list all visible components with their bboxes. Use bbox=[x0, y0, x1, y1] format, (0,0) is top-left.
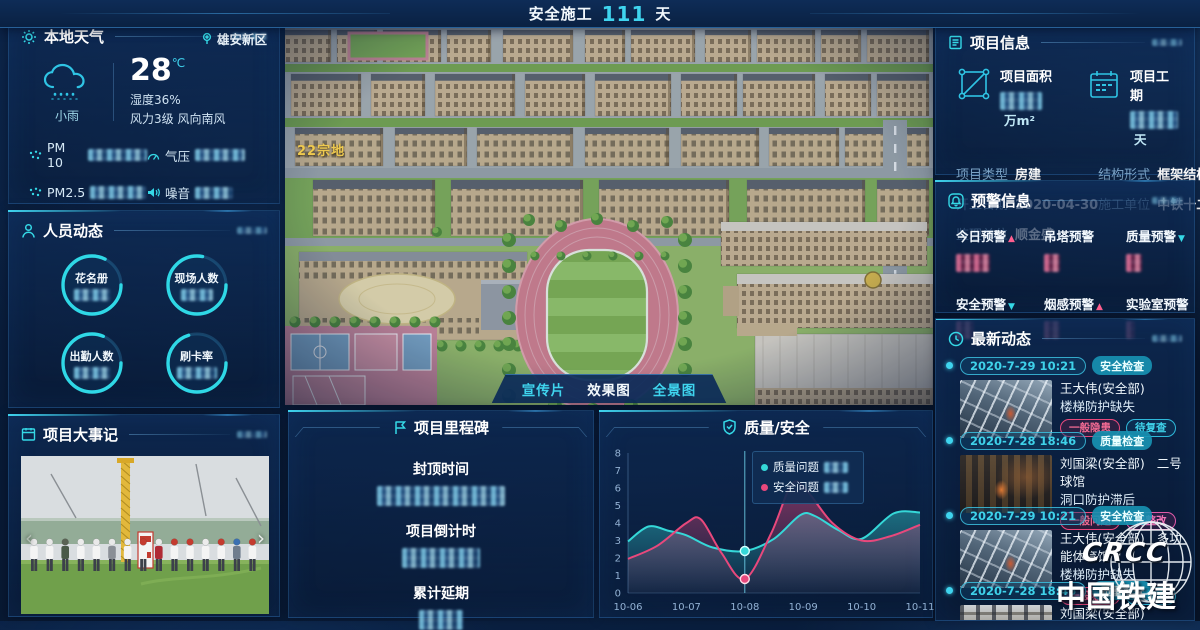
topping-time-value-redacted bbox=[377, 486, 505, 506]
svg-text:1: 1 bbox=[615, 571, 621, 582]
header-deco-line-left bbox=[60, 13, 390, 14]
news-person: 刘国梁(安全部) bbox=[1060, 456, 1145, 471]
project-duration-stat: 项目工期 天 bbox=[1086, 66, 1178, 148]
land-parcel-label: 22宗地 bbox=[297, 140, 345, 159]
milestone-photo: ‹ › bbox=[21, 456, 269, 614]
news-panel-header: 最新动态 bbox=[936, 319, 1194, 352]
view-mode-tabs: 宣传片 效果图 全景图 bbox=[492, 374, 727, 403]
stat-attendance: 出勤人数 bbox=[59, 330, 125, 396]
news-issue: 楼梯防护缺失 bbox=[1060, 398, 1176, 416]
chart-tooltip: 质量问题 安全问题 bbox=[752, 451, 864, 504]
news-photo-thumbnail bbox=[960, 455, 1052, 513]
shield-check-icon bbox=[722, 419, 737, 435]
location-pin-icon bbox=[201, 32, 213, 45]
milestone-events-panel: 项目大事记 bbox=[8, 414, 280, 617]
wind-text: 风力3级 风向南风 bbox=[130, 110, 225, 129]
info-panel-title: 项目信息 bbox=[970, 32, 1030, 53]
svg-text:10-10: 10-10 bbox=[847, 602, 876, 613]
quality-legend-label: 质量问题 bbox=[773, 458, 819, 478]
dust-icon bbox=[29, 187, 42, 198]
topping-time-label: 封顶时间 bbox=[413, 459, 469, 479]
tab-promo-video[interactable]: 宣传片 bbox=[522, 379, 566, 399]
alert-today: 今日预警▲ bbox=[956, 226, 1044, 272]
crcc-acronym: CRCC bbox=[1080, 538, 1169, 568]
alert-quality: 质量预警▼ bbox=[1126, 226, 1194, 272]
alerts-panel-header: 预警信息 bbox=[936, 181, 1194, 214]
svg-text:8: 8 bbox=[615, 449, 621, 460]
header-deco-line-right bbox=[810, 13, 1140, 14]
area-icon bbox=[956, 66, 992, 102]
dust-icon bbox=[29, 150, 42, 161]
trend-up-icon: ▲ bbox=[1008, 234, 1015, 244]
delay-value-redacted bbox=[419, 610, 463, 630]
svg-text:10-07: 10-07 bbox=[672, 602, 701, 613]
news-entry[interactable]: 2020-7-28 18:46 质量检查 刘国梁(安全部)二号球馆 洞口防护滞后… bbox=[946, 431, 1194, 506]
events-panel-title: 项目大事记 bbox=[43, 424, 118, 445]
alarm-bell-icon bbox=[948, 193, 964, 209]
svg-text:3: 3 bbox=[615, 536, 621, 547]
speaker-icon bbox=[147, 187, 160, 198]
weather-panel-title: 本地天气 bbox=[44, 26, 104, 47]
countdown-label: 项目倒计时 bbox=[406, 521, 476, 541]
carousel-prev-button[interactable]: ‹ bbox=[25, 528, 33, 548]
location-badge: 雄安新区 bbox=[201, 29, 267, 48]
news-entry[interactable]: 2020-7-29 10:21 安全检查 王大伟(安全部) 楼梯防护缺失 一般隐… bbox=[946, 356, 1194, 431]
noise-metric: 噪音 bbox=[147, 183, 265, 202]
news-type-badge: 质量检查 bbox=[1092, 431, 1152, 450]
news-type-badge: 安全检查 bbox=[1092, 356, 1152, 375]
project-milestone-panel: 项目里程碑 封顶时间 项目倒计时 累计延期 bbox=[288, 410, 594, 618]
clock-icon bbox=[948, 331, 964, 347]
calendar-icon bbox=[1086, 66, 1122, 102]
pressure-metric: 气压 bbox=[147, 140, 265, 170]
alert-quality-value-redacted bbox=[1126, 254, 1142, 272]
stat-roster: 花名册 bbox=[59, 252, 125, 318]
area-value-redacted bbox=[1000, 92, 1042, 110]
cardrate-value-redacted bbox=[177, 367, 217, 379]
header-title-suffix: 天 bbox=[655, 3, 671, 24]
trend-down-icon: ▼ bbox=[1008, 302, 1015, 312]
attendance-value-redacted bbox=[74, 367, 110, 379]
header-title-prefix: 安全施工 bbox=[529, 3, 593, 24]
svg-text:2: 2 bbox=[615, 554, 621, 565]
news-photo-thumbnail bbox=[960, 605, 1052, 621]
safe-construction-days: 111 bbox=[602, 2, 647, 26]
person-icon bbox=[21, 223, 36, 239]
temperature-value: 28 bbox=[130, 53, 172, 88]
svg-text:10-08: 10-08 bbox=[730, 602, 759, 613]
personnel-panel: 人员动态 花名册 现场人数 出勤人数 刷卡率 bbox=[8, 210, 280, 408]
alert-today-value-redacted bbox=[956, 254, 990, 272]
alert-crane: 吊塔预警 bbox=[1044, 226, 1126, 272]
pm25-value-redacted bbox=[90, 186, 146, 199]
crcc-logo: CRCC 中国铁建 bbox=[1056, 524, 1200, 621]
flag-icon bbox=[393, 420, 407, 435]
timeline-dot bbox=[946, 512, 953, 519]
project-info-panel: 项目信息 项目面积 万m² 项目工期 bbox=[935, 22, 1195, 175]
carousel-next-button[interactable]: › bbox=[257, 528, 265, 548]
crcc-chinese-name: 中国铁建 bbox=[1056, 572, 1176, 616]
personnel-panel-title: 人员动态 bbox=[43, 220, 103, 241]
quality-tip-value-redacted bbox=[824, 462, 848, 473]
quality-safety-panel: 质量/安全 01234567810-0610-0710-0810-0910-10… bbox=[599, 410, 933, 618]
news-person: 王大伟(安全部) bbox=[1060, 381, 1145, 396]
pm10-value-redacted bbox=[88, 149, 147, 161]
weather-panel: 本地天气 雄安新区 小雨 28℃ 湿度36% 风力3级 风向南风 bbox=[8, 16, 280, 204]
svg-text:10-11: 10-11 bbox=[905, 602, 934, 613]
project-area-stat: 项目面积 万m² bbox=[956, 66, 1056, 148]
quality-legend-dot bbox=[761, 464, 768, 471]
svg-text:10-06: 10-06 bbox=[613, 602, 642, 613]
location-name: 雄安新区 bbox=[217, 29, 267, 48]
sun-gear-icon bbox=[21, 29, 37, 45]
milestone-panel-title: 项目里程碑 bbox=[414, 417, 489, 438]
duration-value-redacted bbox=[1130, 111, 1178, 129]
svg-text:6: 6 bbox=[615, 484, 621, 495]
trend-down-icon: ▼ bbox=[1178, 234, 1185, 244]
temperature-unit: ℃ bbox=[172, 56, 185, 70]
weather-condition: 小雨 bbox=[55, 107, 79, 124]
svg-text:10-09: 10-09 bbox=[789, 602, 818, 613]
pm10-metric: PM 10 bbox=[29, 140, 147, 170]
svg-text:7: 7 bbox=[615, 466, 621, 477]
news-photo-thumbnail bbox=[960, 530, 1052, 588]
safety-tip-value-redacted bbox=[824, 482, 848, 493]
air-metrics: PM 10 气压 PM2.5 噪音 bbox=[9, 130, 279, 202]
news-timestamp: 2020-7-29 10:21 bbox=[960, 357, 1086, 375]
timeline-dot bbox=[946, 587, 953, 594]
weather-current: 小雨 28℃ 湿度36% 风力3级 风向南风 bbox=[9, 50, 279, 130]
svg-text:4: 4 bbox=[615, 519, 621, 530]
milestone-panel-header: 项目里程碑 bbox=[289, 411, 593, 443]
timeline-dot bbox=[946, 437, 953, 444]
alerts-panel: 预警信息 今日预警▲ 吊塔预警 质量预警▼ 安全预警▼ 烟感预警▲ 实验室预警 bbox=[935, 180, 1195, 313]
news-photo-thumbnail bbox=[960, 380, 1052, 438]
onsite-value-redacted bbox=[181, 289, 213, 301]
delay-label: 累计延期 bbox=[413, 583, 469, 603]
news-timestamp: 2020-7-28 18:46 bbox=[960, 432, 1086, 450]
noise-value-redacted bbox=[195, 187, 233, 199]
document-icon bbox=[948, 35, 963, 50]
rain-cloud-icon bbox=[41, 61, 93, 105]
pressure-value-redacted bbox=[195, 149, 245, 161]
countdown-value-redacted bbox=[402, 548, 480, 568]
chart-panel-header: 质量/安全 bbox=[600, 411, 932, 443]
safety-legend-label: 安全问题 bbox=[773, 478, 819, 498]
personnel-panel-header: 人员动态 bbox=[9, 211, 279, 244]
news-timestamp: 2020-7-29 10:21 bbox=[960, 507, 1086, 525]
tab-panorama[interactable]: 全景图 bbox=[653, 379, 697, 399]
chart-panel-title: 质量/安全 bbox=[744, 417, 809, 438]
3d-campus-view[interactable]: 22宗地 宣传片 效果图 全景图 bbox=[285, 28, 933, 405]
header-bar: 安全施工 111 天 bbox=[0, 0, 1200, 28]
trend-up-icon: ▲ bbox=[1096, 302, 1103, 312]
timeline-dot bbox=[946, 362, 953, 369]
pm25-metric: PM2.5 bbox=[29, 183, 147, 202]
alert-crane-value-redacted bbox=[1044, 254, 1060, 272]
stat-card-rate: 刷卡率 bbox=[164, 330, 230, 396]
humidity-text: 湿度36% bbox=[130, 91, 225, 110]
roster-value-redacted bbox=[74, 289, 110, 301]
svg-text:5: 5 bbox=[615, 501, 621, 512]
news-panel-title: 最新动态 bbox=[971, 328, 1031, 349]
stat-onsite-count: 现场人数 bbox=[164, 252, 230, 318]
tab-render-view[interactable]: 效果图 bbox=[587, 379, 631, 399]
calendar-page-icon bbox=[21, 427, 36, 442]
events-panel-header: 项目大事记 bbox=[9, 415, 279, 448]
alerts-panel-title: 预警信息 bbox=[971, 190, 1031, 211]
safety-legend-dot bbox=[761, 484, 768, 491]
gauge-icon bbox=[147, 150, 160, 161]
svg-text:0: 0 bbox=[615, 589, 621, 600]
